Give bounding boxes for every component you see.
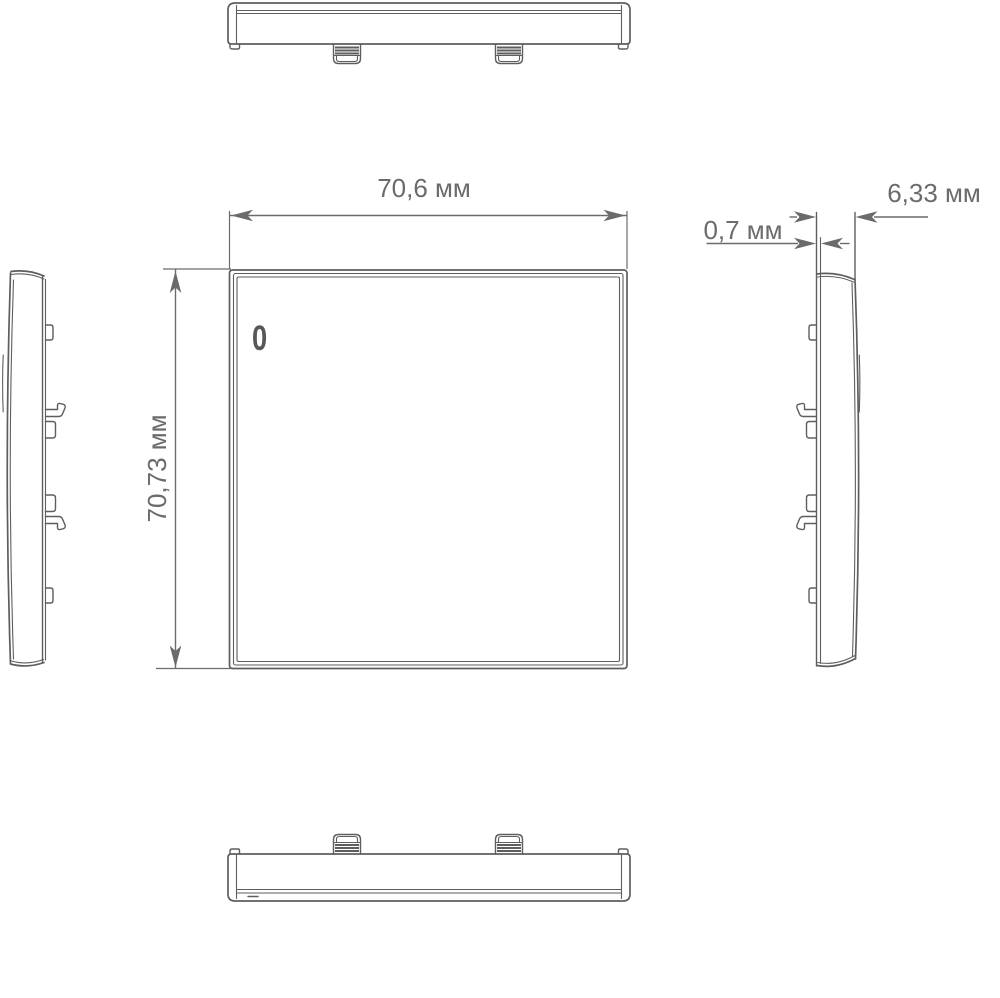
top-view-clip-right [496, 44, 523, 64]
top-view [228, 3, 630, 64]
technical-drawing-page: 0 70,6 мм 70,73 мм [0, 0, 1000, 998]
left-view-latch-upper-hook [46, 403, 66, 416]
right-view-clip-bottom [809, 588, 817, 603]
dim-front-lip: 0,7 мм [703, 215, 849, 249]
right-view-latch-upper-step [807, 422, 817, 439]
dim-height: 70,73 мм [142, 269, 231, 669]
left-side-view [3, 271, 66, 666]
bottom-view-clip-right [496, 835, 523, 855]
top-view-clip-left [334, 44, 361, 64]
right-view-clip-top [809, 325, 817, 340]
dim-depth-label: 6,33 мм [887, 178, 981, 208]
bottom-view [228, 835, 630, 902]
dimension-drawing-canvas: 0 70,6 мм 70,73 мм [0, 0, 1000, 998]
right-view-latch-lower-hook [797, 517, 817, 530]
front-view: 0 [230, 270, 628, 669]
dim-height-label: 70,73 мм [142, 414, 172, 522]
left-view-latch-upper-step [46, 422, 56, 439]
left-view-clip-top [46, 325, 54, 340]
left-view-latch-lower-step [46, 495, 56, 512]
arrow-right-icon [794, 211, 816, 223]
right-view-latch-upper-hook [797, 403, 817, 416]
dim-width-label: 70,6 мм [377, 173, 471, 203]
right-view-latch-lower-step [807, 495, 817, 512]
dim-front-lip-label: 0,7 мм [703, 215, 782, 245]
right-side-view [797, 213, 860, 667]
left-view-clip-bottom [46, 588, 54, 603]
dim-width: 70,6 мм [230, 173, 628, 269]
dim-depth: 6,33 мм [790, 178, 981, 223]
bottom-view-clip-left [334, 835, 361, 855]
left-view-latch-lower-hook [46, 517, 66, 530]
arrow-left-icon [821, 238, 843, 250]
product-marking: 0 [252, 319, 267, 358]
